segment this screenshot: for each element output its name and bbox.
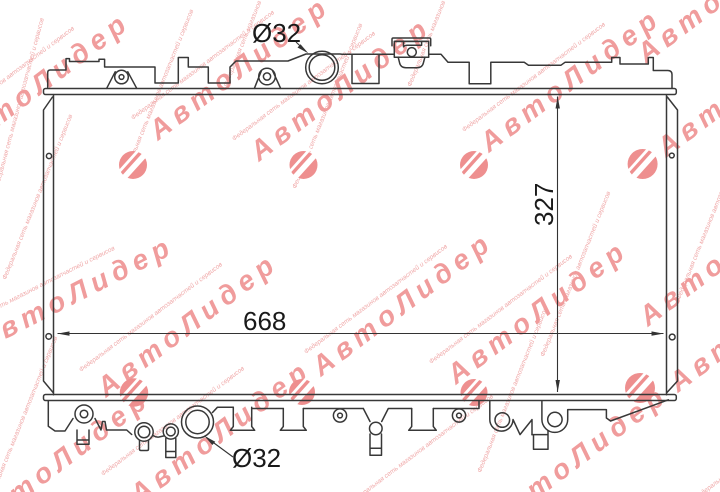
svg-text:Ø32: Ø32 — [252, 18, 301, 48]
svg-text:Ø32: Ø32 — [232, 443, 281, 473]
svg-text:327: 327 — [529, 183, 559, 226]
svg-text:668: 668 — [243, 306, 286, 336]
